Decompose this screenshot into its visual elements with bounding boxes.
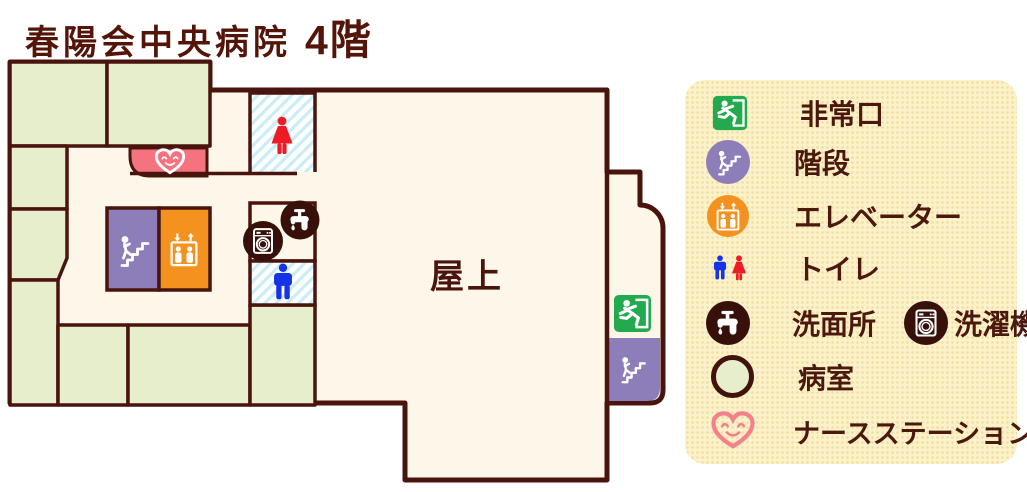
legend-label: 非常口 [800,93,884,133]
washing-machine-icon [243,221,283,261]
patient-room-icon [711,355,754,398]
stairs-icon [706,140,750,184]
man-icon [711,251,729,286]
faucet-icon [281,201,320,240]
patient-room [10,280,58,405]
legend-panel: 非常口 階段 エレベーター トイレ 洗面所 [685,80,1017,464]
elevator-icon [707,195,749,237]
exit-icon [712,95,748,131]
hospital-floor-map-page: 春陽会中央病院4階 [0,0,1027,492]
legend-label: エレベーター [794,196,962,236]
legend-label: 洗面所 [792,303,876,343]
patient-room [107,62,210,146]
legend-label: 階段 [794,142,850,182]
patient-room [250,305,315,405]
woman-icon [729,252,749,286]
rooftop-label: 屋上 [430,258,504,296]
patient-room [10,62,107,146]
patient-room [10,146,67,209]
toilet-icons [711,251,749,286]
legend-row-patient-room: 病室 [711,355,854,398]
legend-row-toilet: トイレ [711,248,880,288]
legend-label: トイレ [796,248,880,288]
legend-row-nurse-station: ナースステーション [709,411,1027,451]
legend-label: ナースステーション [793,412,1027,451]
legend-row-stairs: 階段 [706,140,850,184]
legend-row-emergency-exit: 非常口 [712,93,884,133]
elevator-room [159,208,210,290]
patient-room [58,325,128,405]
legend-row-washstand: 洗面所 洗濯機 [706,301,1027,345]
patient-room [10,209,67,280]
patient-room [128,325,250,405]
stairs-room [107,208,159,290]
legend-row-elevator: エレベーター [707,195,962,237]
legend-label: 病室 [798,357,854,397]
faucet-icon [706,301,750,345]
exit-icon [614,295,651,332]
legend-label: 洗濯機 [954,303,1027,343]
washing-machine-icon [904,301,948,345]
emergency-stairs-area [608,338,660,401]
nurse-heart-icon [709,411,757,451]
